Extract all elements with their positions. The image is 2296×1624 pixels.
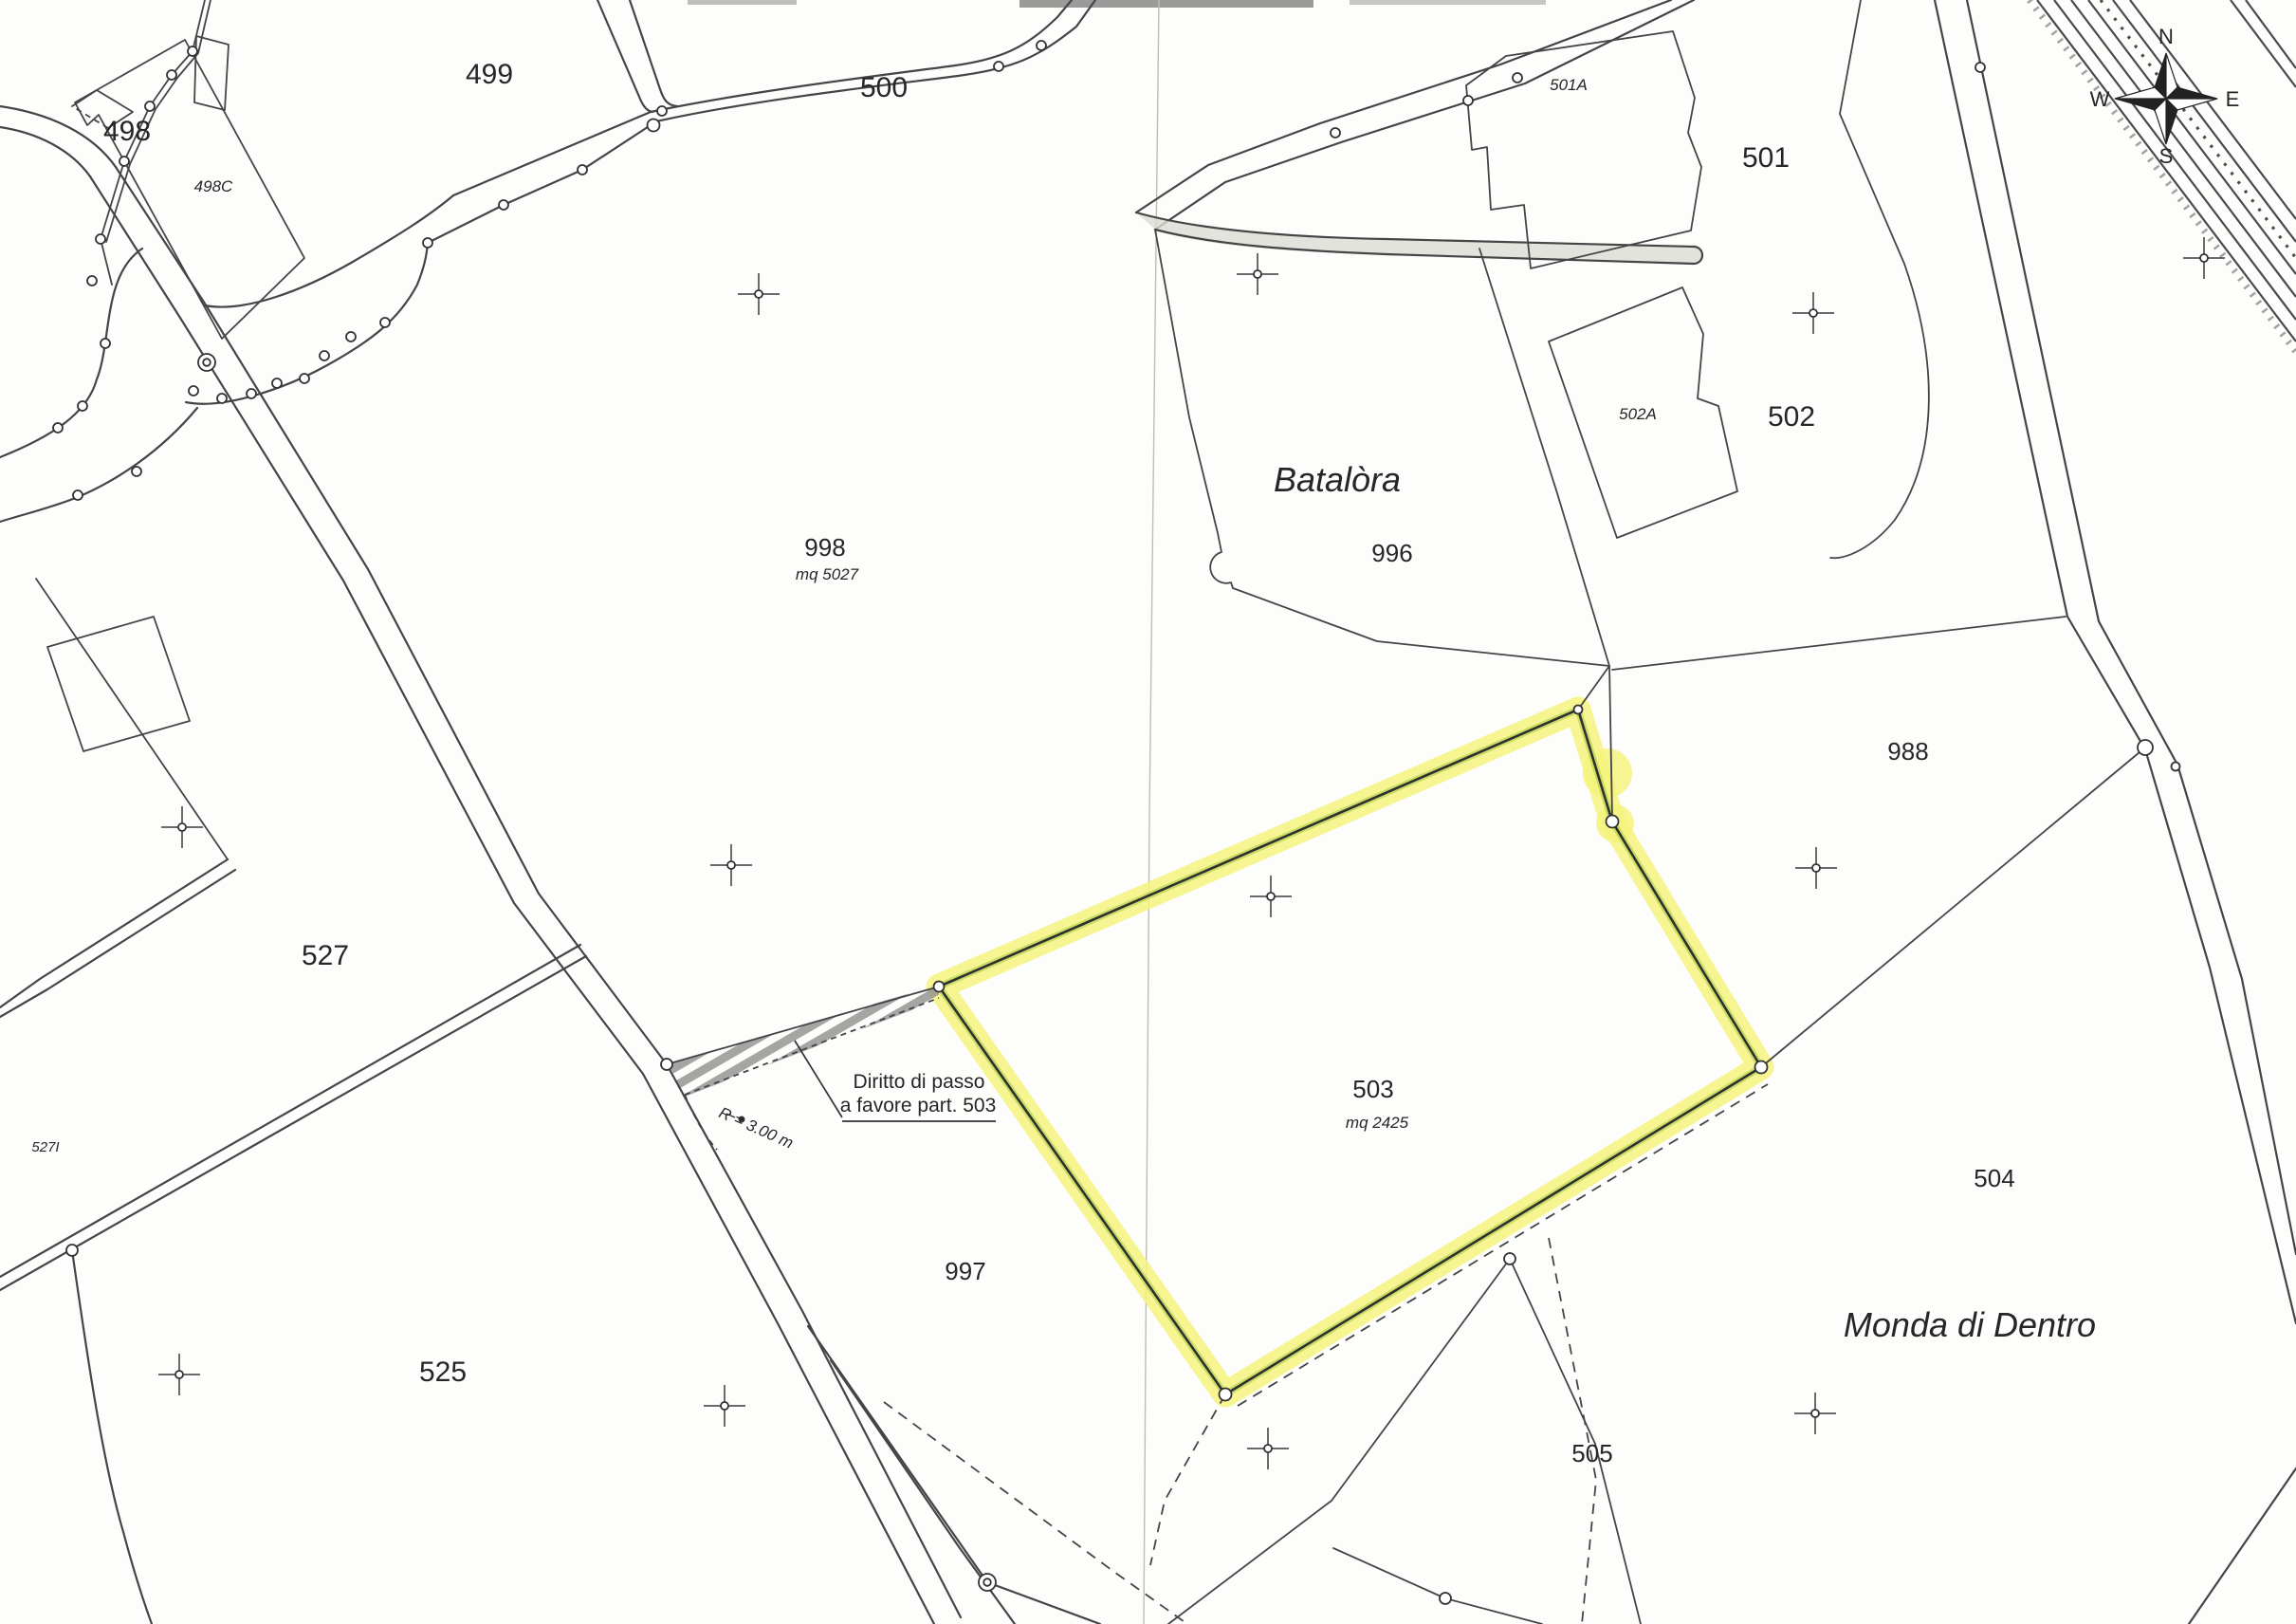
grid-cross — [158, 1354, 200, 1395]
boundary-996-west — [1155, 230, 1233, 588]
track-b1-edge — [0, 945, 580, 1277]
railway-rail — [2113, 0, 2296, 242]
boundary-527-east — [36, 579, 228, 859]
roads — [0, 0, 2296, 1624]
boundary-link — [1578, 666, 1609, 710]
scanned-cadastral-map-page: N E S W 498 498C 499 500 501A 501 502A 5… — [0, 0, 2296, 1624]
parcel-boundaries — [36, 0, 2145, 1624]
road-a-north-edge — [205, 112, 651, 307]
boundary-505-south — [1333, 1548, 1542, 1624]
grid-cross — [1792, 292, 1834, 334]
parcel-527i-label: 527I — [31, 1139, 59, 1155]
boundary-b2 — [72, 1250, 152, 1624]
parcel-502-label: 502 — [1768, 401, 1815, 433]
railway — [2030, 0, 2296, 352]
boundary-988-north — [1612, 617, 2066, 670]
road-q-north-edge — [1136, 0, 1671, 212]
survey-points — [53, 41, 2180, 1604]
parcel-998-label: 998 — [804, 533, 845, 562]
grid-cross — [1250, 876, 1292, 917]
labels: 498 498C 499 500 501A 501 502A 502 Batal… — [31, 59, 2096, 1467]
railway-rail — [2037, 0, 2296, 341]
parcel-500-label: 500 — [860, 72, 908, 103]
easement-note-line1: Diritto di passo — [854, 1071, 985, 1093]
parcel-501-label: 501 — [1742, 142, 1790, 174]
railway-rail — [2071, 0, 2296, 297]
parcel-504-label: 504 — [1974, 1164, 2014, 1192]
grid-cross — [1795, 847, 1837, 889]
railway-rail — [2088, 0, 2296, 274]
benchmark — [979, 1574, 996, 1591]
parcel-502a-label: 502A — [1619, 405, 1657, 423]
radius-arc — [685, 1095, 717, 1150]
grid-cross — [161, 806, 203, 848]
building-501a — [1466, 31, 1701, 268]
locality-monda-di-dentro-label: Monda di Dentro — [1844, 1305, 2096, 1344]
parcel-998-area-label: mq 5027 — [796, 565, 859, 583]
grid-cross — [738, 273, 780, 315]
road-a-south-edge — [186, 121, 656, 404]
parcel-525-label: 525 — [419, 1356, 467, 1388]
highlighted-parcel-503 — [939, 710, 1761, 1394]
railway-corner-line — [2231, 0, 2296, 87]
leader-line — [795, 1041, 842, 1117]
railway-rail — [2054, 0, 2296, 320]
top-road-west-edge — [597, 0, 652, 112]
railway-center-dotted — [2101, 0, 2296, 258]
grid-cross — [1794, 1393, 1836, 1434]
dashed-boundaries — [884, 1084, 1768, 1624]
railway-ties — [2030, 0, 2296, 352]
parcel-527-label: 527 — [302, 940, 349, 971]
right-of-way-hatch — [669, 985, 939, 1150]
compass-rose: N E S W — [2090, 25, 2240, 168]
grid-cross — [710, 844, 752, 886]
compass-e-label: E — [2226, 87, 2240, 111]
road-q-south-edge — [1155, 0, 1694, 230]
west-road-top-curve — [0, 127, 90, 176]
boundary-501-502 — [1840, 0, 1904, 264]
track-b1-edge — [0, 956, 586, 1290]
grid-cross — [1247, 1428, 1289, 1469]
cadastral-map: N E S W 498 498C 499 500 501A 501 502A 5… — [0, 0, 2296, 1624]
parcel-503-label: 503 — [1352, 1075, 1393, 1103]
railway-corner-line — [2246, 0, 2296, 68]
parcel-988-label: 988 — [1887, 737, 1928, 766]
easement-note-line2: a favore part. 503 — [840, 1095, 997, 1116]
side-road-curve-upper — [0, 249, 142, 457]
building-527 — [47, 617, 190, 751]
west-road-west-edge — [90, 176, 934, 1624]
compass-s-label: S — [2159, 144, 2174, 168]
side-road-curve-lower — [0, 408, 197, 522]
grid-cross — [1237, 253, 1278, 295]
scan-fold-line — [1144, 0, 1159, 1624]
grid-cross — [704, 1385, 745, 1427]
highlight-marker-stroke — [939, 710, 1761, 1394]
east-road-west-edge — [1935, 0, 2296, 1323]
parcel-505-label: 505 — [1571, 1439, 1612, 1467]
grid-crosses — [158, 237, 2225, 1469]
parcel-498c-outline — [75, 40, 304, 339]
locality-batalora-label: Batalòra — [1274, 460, 1401, 499]
dashed-along-503-se — [1238, 1084, 1768, 1406]
boundary-996-south — [1233, 588, 1609, 666]
fork-road-edge — [808, 1326, 1100, 1624]
parcel-499-label: 499 — [466, 59, 513, 90]
east-road-extra-line — [2189, 1468, 2296, 1624]
curve-502 — [1830, 264, 1929, 558]
compass-n-label: N — [2158, 25, 2174, 48]
dashed-from-503-s-corner — [1150, 1394, 1225, 1565]
parcel-498c-label: 498C — [194, 177, 233, 195]
parcel-501a-label: 501A — [1550, 76, 1588, 94]
track-b0-edge — [0, 859, 228, 1007]
grid-cross — [2183, 237, 2225, 279]
west-road-east-edge — [116, 167, 961, 1617]
benchmark — [198, 354, 215, 371]
parcel-498-label: 498 — [103, 116, 151, 147]
parcel-997-label: 997 — [945, 1257, 985, 1285]
east-road-east-edge — [1967, 0, 2296, 1254]
parcel-996-label: 996 — [1371, 539, 1412, 567]
compass-w-label: W — [2090, 87, 2110, 111]
parcel-503-area-label: mq 2425 — [1346, 1114, 1409, 1132]
track-b0-edge — [0, 870, 235, 1017]
radius-note: R = 3.00 m — [716, 1103, 796, 1152]
dashed-fork — [884, 1402, 1187, 1624]
boundary-988-504 — [1761, 747, 2145, 1067]
